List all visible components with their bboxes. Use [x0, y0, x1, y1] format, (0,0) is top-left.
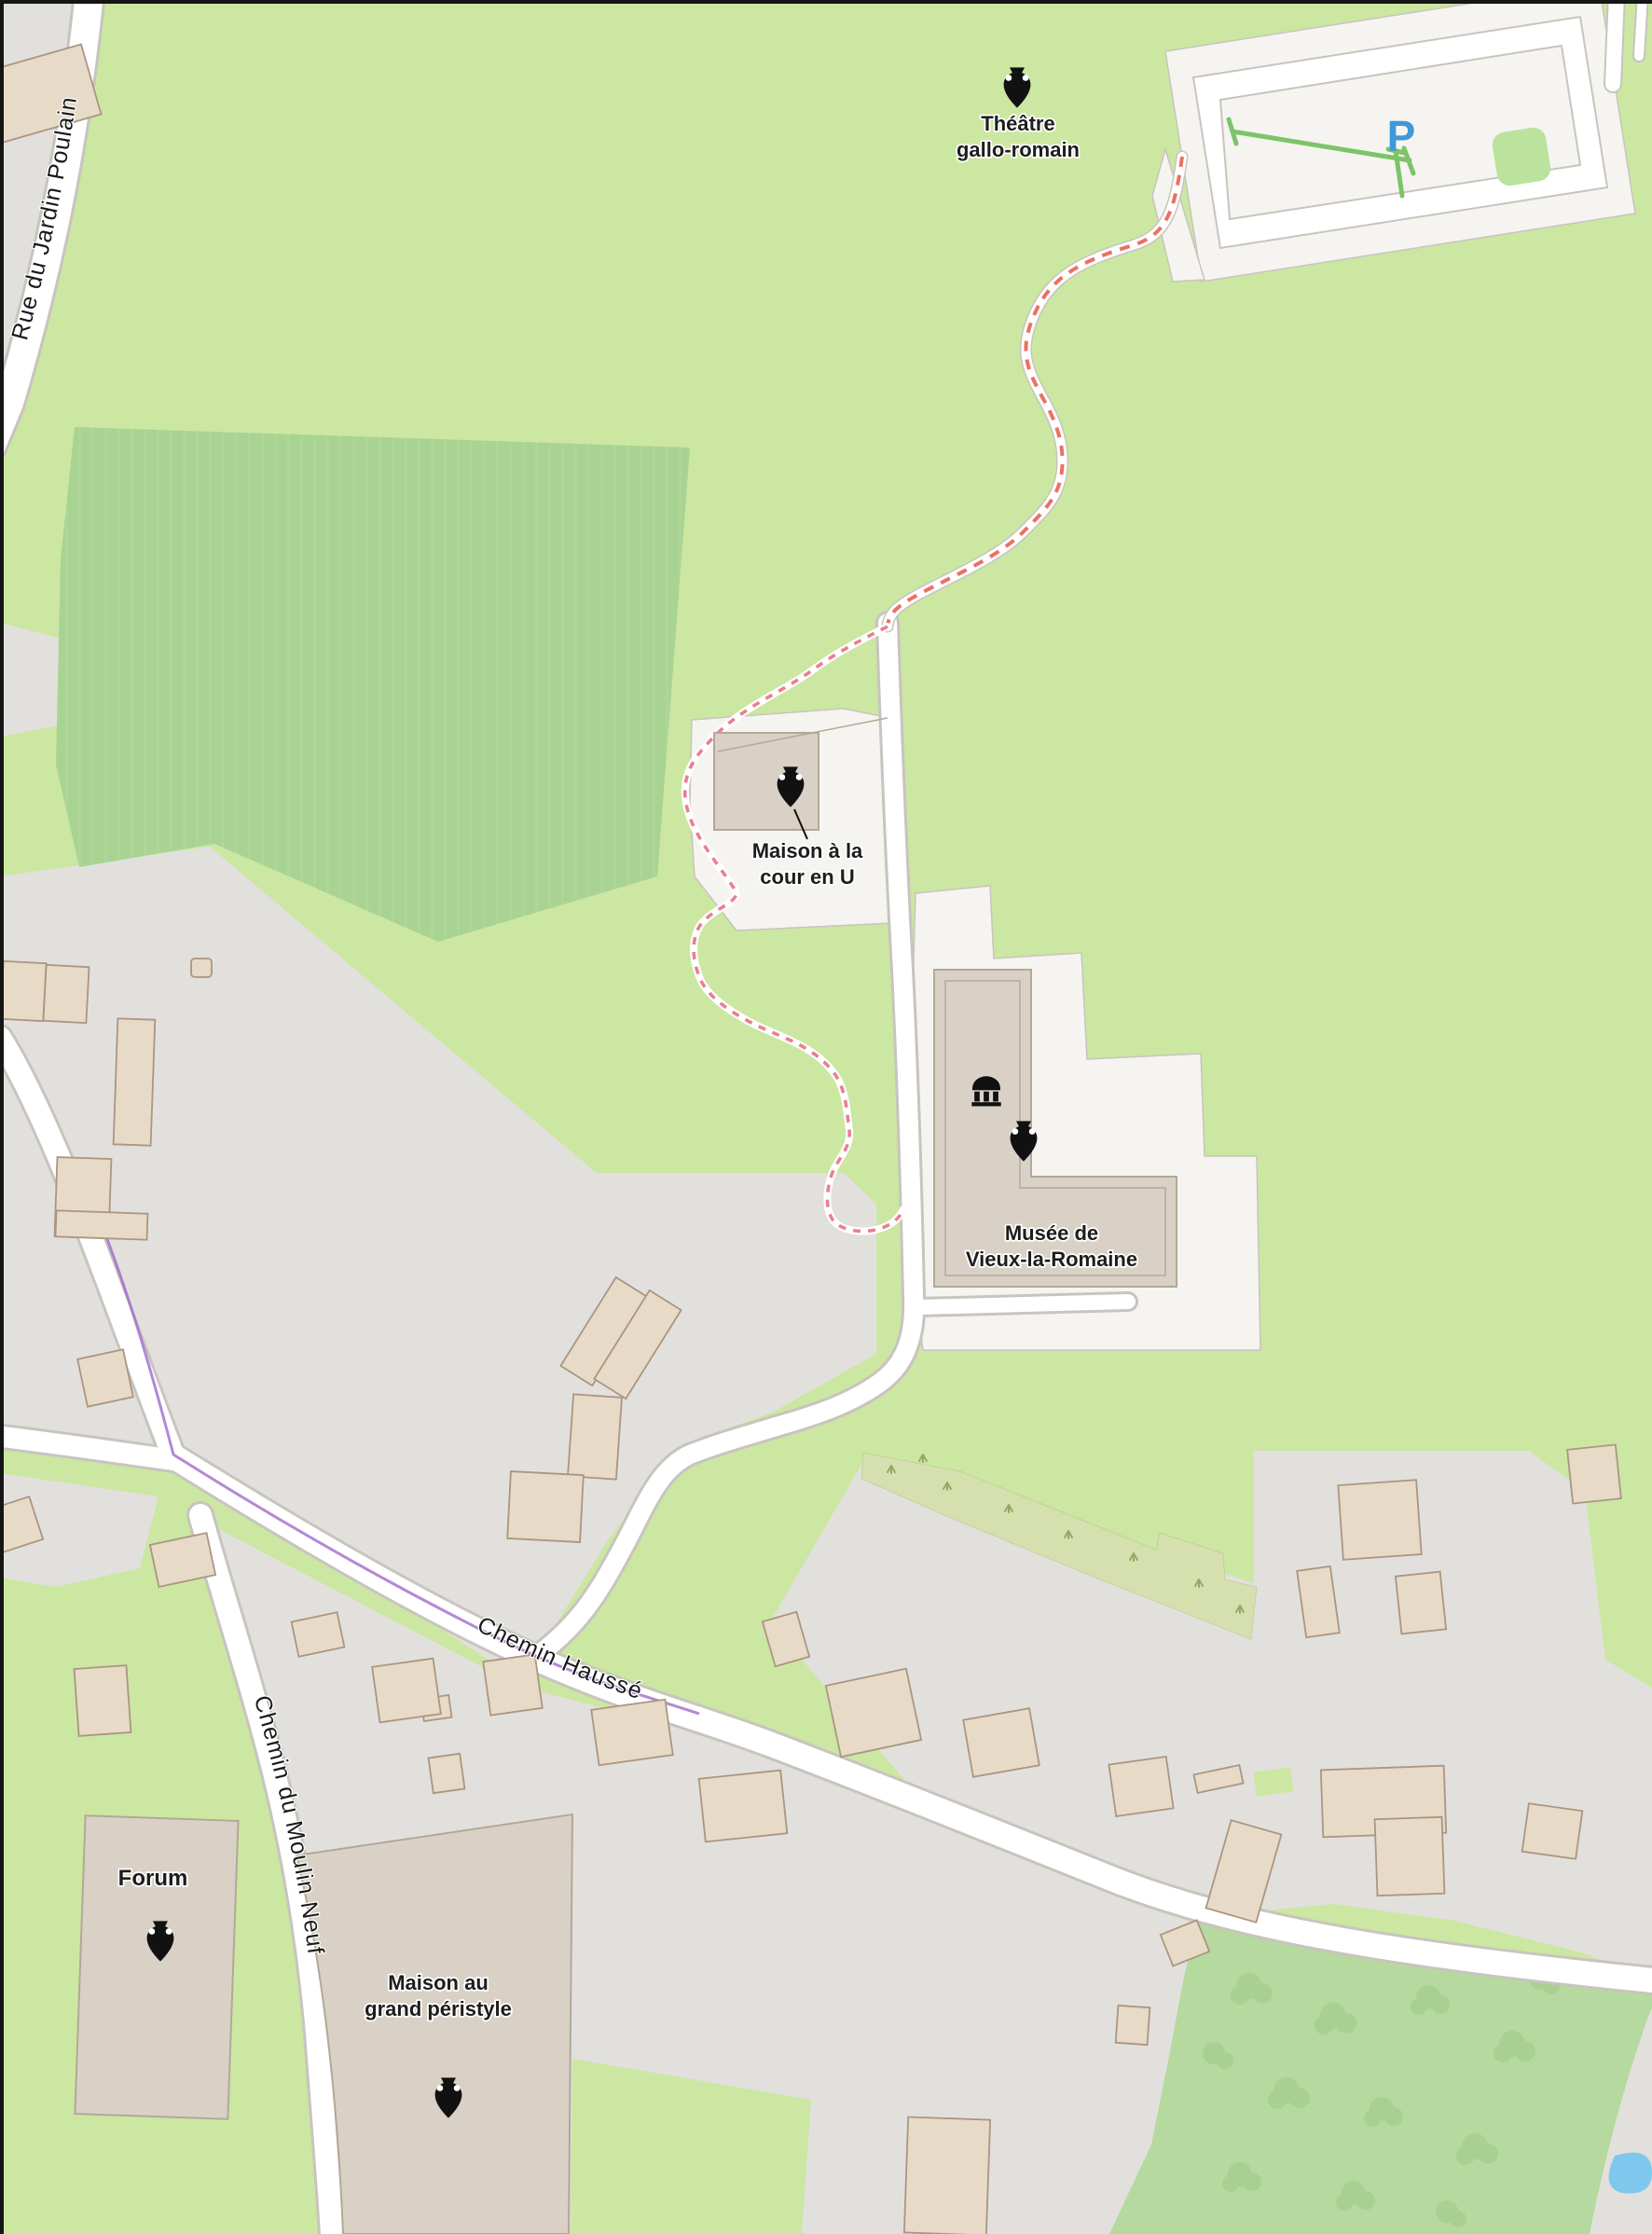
musee-label-line1: Musée de: [1005, 1221, 1098, 1245]
forum-label: Forum: [118, 1866, 188, 1891]
building: [963, 1708, 1039, 1777]
building: [56, 1210, 148, 1239]
pond: [1609, 2153, 1652, 2194]
maison-cour-u-label-line1: Maison à la: [752, 839, 863, 862]
parking-access-path: [1639, 0, 1643, 56]
building: [191, 958, 212, 977]
building: [1396, 1572, 1446, 1634]
map-border-top: [0, 0, 1652, 4]
maison-cour-u-label-line2: cour en U: [760, 865, 854, 889]
building: [0, 961, 46, 1021]
peristyle-label-line1: Maison au: [388, 1971, 489, 1994]
parking-tree-square: [1491, 126, 1552, 187]
building: [114, 1018, 156, 1145]
building: [43, 965, 89, 1023]
peristyle-label-line2: grand péristyle: [365, 1997, 512, 2020]
musee-label-line2: Vieux-la-Romaine: [966, 1248, 1137, 1271]
map-border-left: [0, 0, 4, 2234]
building: [507, 1471, 584, 1542]
building: [826, 1669, 921, 1758]
building: [568, 1394, 622, 1479]
building: [1375, 1817, 1445, 1896]
building: [904, 2117, 990, 2234]
map-canvas[interactable]: P: [0, 0, 1652, 2234]
building: [429, 1754, 465, 1793]
building: [77, 1349, 133, 1406]
museum-driveway: [919, 1302, 1128, 1307]
parking-access-road: [1613, 0, 1617, 84]
forum-site: [75, 1815, 238, 2119]
theatre-label-line2: gallo-romain: [957, 138, 1080, 161]
building: [75, 1665, 131, 1736]
building: [591, 1700, 673, 1766]
building: [1567, 1444, 1621, 1503]
building: [1116, 2006, 1150, 2045]
building: [1338, 1480, 1421, 1560]
parking-icon[interactable]: P: [1387, 112, 1416, 160]
theatre-label-line1: Théâtre: [981, 112, 1054, 135]
building: [372, 1659, 441, 1723]
grass-patch: [1253, 1767, 1293, 1796]
building: [1108, 1757, 1173, 1816]
building: [699, 1771, 788, 1842]
building: [1522, 1803, 1583, 1859]
